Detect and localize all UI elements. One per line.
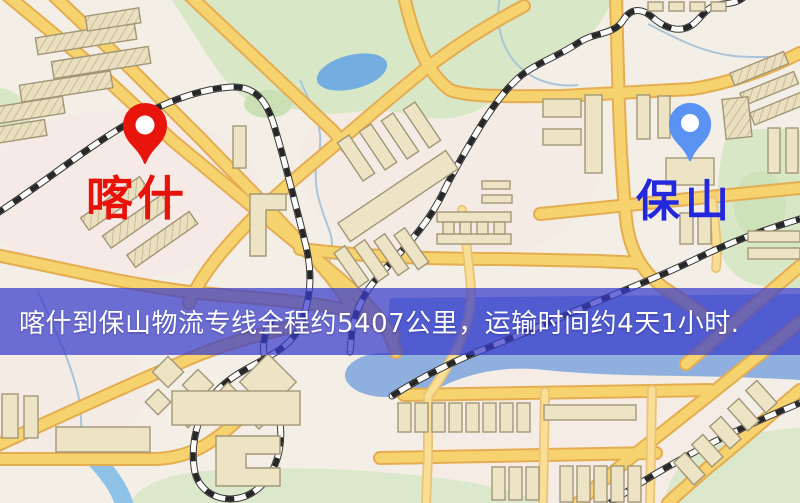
origin-pin-hole (136, 116, 155, 135)
map-canvas[interactable] (0, 0, 800, 503)
destination-pin-hole (681, 114, 699, 132)
destination-label: 保山 (636, 180, 734, 224)
route-info-banner: 喀什到保山物流专线全程约5407公里，运输时间约4天1小时. (0, 288, 800, 355)
origin-label: 喀什 (86, 176, 188, 223)
route-info-text: 喀什到保山物流专线全程约5407公里，运输时间约4天1小时. (19, 303, 740, 340)
logistics-map-image: 喀什 保山 喀什到保山物流专线全程约5407公里，运输时间约4天1小时. (0, 0, 800, 503)
